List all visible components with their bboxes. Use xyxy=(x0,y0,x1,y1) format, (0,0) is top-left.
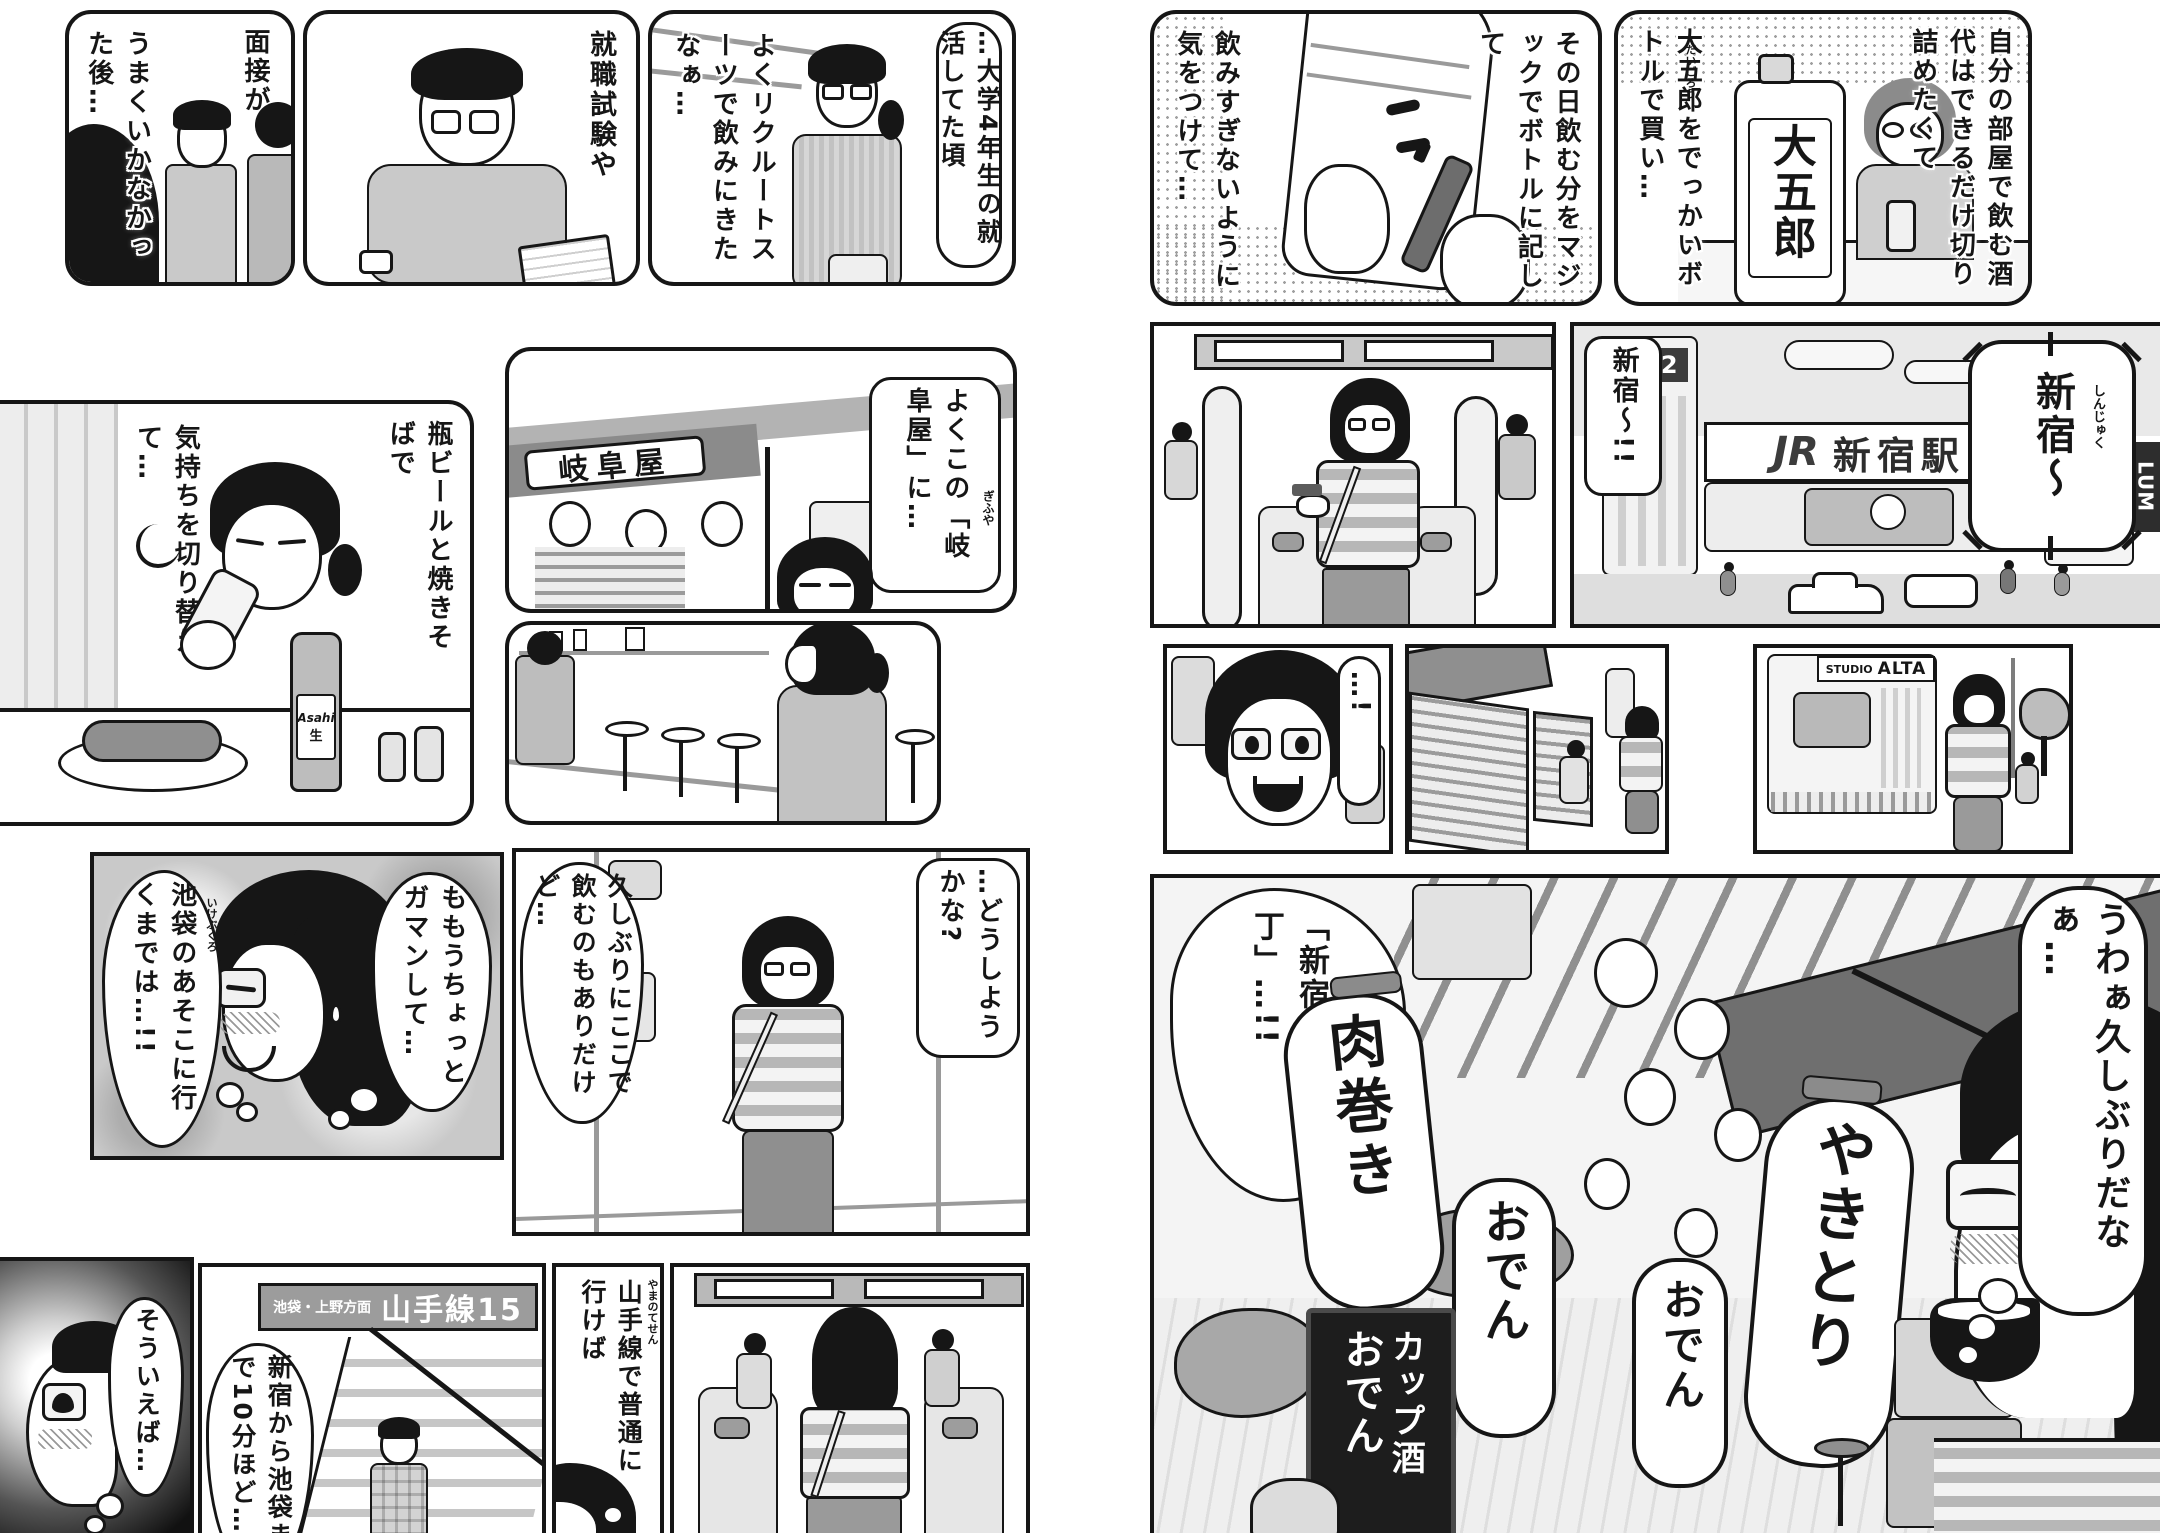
alta-sign-studio: STUDIO xyxy=(1826,663,1873,676)
woman-eye-line2 xyxy=(829,583,851,587)
recruit-glasses-l xyxy=(822,84,844,100)
alta-railing xyxy=(1771,792,1931,812)
thought-bubble-uwaa: うわぁ久しぶりだなぁ… xyxy=(2018,886,2148,1316)
young-woman-ponytail xyxy=(865,653,889,693)
storefront-screen xyxy=(535,547,685,613)
sj-woman-shirt xyxy=(1316,460,1420,568)
uwaa-dot-2 xyxy=(1966,1314,1998,1342)
beer-label: Asahi 生 xyxy=(296,694,336,760)
round-lantern-1 xyxy=(1594,938,1658,1008)
uwaa-dot-1 xyxy=(1978,1278,2018,1314)
dots-text: …! xyxy=(1340,671,1378,791)
thought-bubble-souieba: そういえば… xyxy=(108,1297,184,1497)
alley-glasses-l xyxy=(764,962,784,976)
yamanote-sign-big: 山手線15 xyxy=(381,1285,523,1329)
speech-bubble-hisashiburi-koko: 久しぶりにここで飲むのもありだけど… xyxy=(520,862,644,1124)
burst-shinjuku-text: 新宿〜 xyxy=(2023,371,2081,521)
caption-shushoku: 就職試験や xyxy=(581,30,620,210)
souieba-text: そういえば… xyxy=(128,1307,164,1487)
ikebukuro-text: 池袋のあそこに行くまでは…!! xyxy=(124,881,199,1137)
burst-bubble-shinjuku: 新宿〜 しんじゅく xyxy=(1968,340,2136,552)
applicant-hair xyxy=(173,100,231,130)
souieba-eye xyxy=(52,1393,74,1413)
woman-head-face xyxy=(791,565,857,613)
thought-dot-2 xyxy=(328,1108,352,1130)
eraser xyxy=(359,250,393,274)
stool-seat-3 xyxy=(717,733,761,749)
gates-light-1 xyxy=(1214,340,1344,362)
lantern-round-3 xyxy=(701,501,743,547)
gate-reader-l xyxy=(714,1417,750,1439)
caption-mensetsu: 面接が xyxy=(235,28,273,158)
leaving-man xyxy=(515,655,575,765)
sj-glasses-l xyxy=(1348,418,1366,431)
cloud-1 xyxy=(1784,340,1894,370)
thought-bubble-ikebukuro: 池袋のあそこに行くまでは…!! いけぶくろ xyxy=(102,870,222,1148)
woman-eye-line xyxy=(799,583,821,587)
gate-reader-r xyxy=(942,1417,978,1439)
overhead-sign-2 xyxy=(864,1279,984,1299)
hoodie-glasses-l xyxy=(1882,122,1904,138)
shutter-1 xyxy=(1409,692,1529,854)
round-lantern-6 xyxy=(1674,1208,1718,1258)
thought-dot-4 xyxy=(236,1102,258,1122)
oden-board-line1: おでん xyxy=(1337,1329,1385,1529)
daigoro-label-text: 大五郎 xyxy=(1758,123,1822,273)
sj-gate-reader-l xyxy=(1272,532,1304,552)
souieba-blush xyxy=(38,1429,92,1449)
ped-2-body xyxy=(2000,568,2016,594)
bg-person-2-head xyxy=(932,1329,954,1351)
caption-jibun-heya: 自分の部屋で飲む酒代はできるだけ切り詰めたくて xyxy=(1903,28,2016,296)
ped-1-body xyxy=(1720,570,1736,596)
recruit-glasses-r xyxy=(850,84,872,100)
daigoro-cap xyxy=(1758,54,1794,84)
storefront-post xyxy=(765,447,770,613)
yamanote-text: 山手線で普通に行けば xyxy=(574,1279,647,1475)
lantern-oden2-text: おでん xyxy=(1650,1278,1711,1468)
recruit-bag xyxy=(828,254,888,286)
alta-ped-body xyxy=(2015,764,2039,804)
recruit-hair xyxy=(808,44,886,84)
alta-sign: STUDIO ALTA xyxy=(1817,656,1935,682)
gate-machine-l xyxy=(698,1387,778,1533)
street-pole xyxy=(2011,658,2015,778)
alley-woman-pants xyxy=(742,1130,834,1234)
tv-signboard xyxy=(1412,884,1532,980)
sj-glasses-r xyxy=(1372,418,1390,431)
burst-tick-5 xyxy=(2048,332,2053,356)
street-stool xyxy=(1814,1438,1870,1458)
young-woman-profile xyxy=(785,643,819,685)
caption-nomisugi: 飲みすぎないように気をつけて… xyxy=(1168,30,1243,292)
beer-brand: Asahi xyxy=(297,711,334,725)
yamanote-furigana: やまのてせん xyxy=(644,1279,660,1345)
sj-bg-person-1-head xyxy=(1172,422,1192,442)
uwaa-text: うわぁ久しぶりだなぁ… xyxy=(2031,901,2135,1301)
panel-interview: 面接が うまくいかなかった後… xyxy=(65,10,295,286)
barrel xyxy=(1250,1478,1340,1533)
ic-card xyxy=(1292,484,1322,496)
bg-person-2 xyxy=(924,1349,960,1407)
smile-teeth xyxy=(1257,776,1299,784)
ped-3-body xyxy=(2054,572,2070,596)
caption-box-daigaku: …大学4年生の就活してた頃 xyxy=(936,22,1002,268)
young-woman-back xyxy=(777,685,887,825)
gates-light-2 xyxy=(1364,340,1494,362)
round-lantern-3 xyxy=(1624,1068,1676,1126)
bg-person-1-head xyxy=(744,1333,766,1355)
manga-spread: 面接が うまくいかなかった後… 就職試験や …大学4年生の就活してた頃 よくリク… xyxy=(0,0,2160,1533)
holding-hand xyxy=(1304,164,1390,274)
panel-recruit-suit: …大学4年生の就活してた頃 よくリクルートスーツで飲みにきたなぁ… xyxy=(648,10,1016,286)
panel-jr-shinjuku: NE2 JR 新宿駅 LUM 新宿〜!! 新宿〜 しんじゅく xyxy=(1570,322,2160,628)
caption-binbeer: 瓶ビールと焼きそばで xyxy=(381,420,456,660)
caption-daigaku-text: …大学4年生の就活してた頃 xyxy=(933,30,1006,260)
gifuya-bubble-text: よくこの「岐阜屋」に… xyxy=(897,387,972,583)
stairs-man-shirt xyxy=(370,1463,428,1533)
stool-seat-4 xyxy=(895,729,935,745)
gifuya-furigana: ぎふや xyxy=(979,490,996,526)
panel-gaman: ももうちょっとガマンして… 池袋のあそこに行くまでは…!! いけぶくろ xyxy=(90,852,504,1160)
pillar-round xyxy=(1202,386,1242,628)
sweat-drop xyxy=(330,1004,342,1024)
panel-marking-bottle: その日飲む分をマジックでボトルに記して 飲みすぎないように気をつけて… xyxy=(1150,10,1602,306)
taxi xyxy=(1788,584,1884,614)
thought-dot-1 xyxy=(348,1086,380,1114)
caption-recruit-suit: よくリクルートスーツで飲みにきたなぁ… xyxy=(666,32,779,284)
daigoro-furigana: だいごろう xyxy=(1682,44,1698,99)
panel-staircase: 池袋・上野方面 山手線15 新宿から池袋まで10分ほど… xyxy=(198,1263,546,1533)
sj-bg-person-1 xyxy=(1164,440,1198,500)
shinjuku-bubble-text: 新宿〜!! xyxy=(1603,346,1642,486)
sj-woman-hand xyxy=(1296,494,1330,518)
drinker-hand xyxy=(180,620,236,670)
shutter-man-body xyxy=(1559,756,1589,804)
panel-alley: …どうしようかな? 久しぶりにここで飲むのもありだけど… xyxy=(512,848,1030,1236)
yakisoba-noodles xyxy=(82,720,222,762)
speech-bubble-gifuya: よくこの「岐阜屋」に… ぎふや xyxy=(869,377,1001,593)
souieba-dot-1 xyxy=(96,1493,124,1519)
speech-bubble-yamanote: 山手線で普通に行けば やまのてせん xyxy=(560,1271,660,1483)
van xyxy=(1904,574,1978,608)
caption-umaku: うまくいかなかった後… xyxy=(79,30,154,280)
exam-woman-hair xyxy=(411,48,523,100)
souieba-dot-2 xyxy=(84,1515,106,1533)
panel-smile-face: …! xyxy=(1163,644,1393,854)
panel-omoide-yokocho: 「新宿思い出横丁」…!! 肉巻き おでん やきとり おでん おでん カップ酒 xyxy=(1150,874,2160,1533)
panel-drinking: 瓶ビールと焼きそばで 気持ちを切り替えて… Asahi 生 xyxy=(0,400,474,826)
billboard-figure-head xyxy=(1870,494,1906,530)
speech-bubble-dots: …! xyxy=(1337,656,1381,806)
alta-vision-screen xyxy=(1793,692,1871,748)
lantern-oden-1: おでん xyxy=(1452,1178,1556,1438)
gates-woman-hair-back xyxy=(812,1307,898,1417)
uwaa-dot-3 xyxy=(1956,1344,1980,1366)
beer-sub: 生 xyxy=(309,725,322,744)
panel-face-yamanote: 山手線で普通に行けば やまのてせん xyxy=(552,1263,664,1533)
shutter-woman-pants xyxy=(1625,790,1659,834)
panel-daigoro: 大五郎 自分の部屋で飲む酒代はできるだけ切り詰めたくて 大五郎をでっかいボトルで… xyxy=(1614,10,2032,306)
stool-seat-1 xyxy=(605,721,649,737)
street-stool-leg xyxy=(1838,1456,1843,1526)
salt-shaker xyxy=(378,732,406,782)
lantern-oden1-text: おでん xyxy=(1471,1198,1538,1418)
stool-leg-4 xyxy=(911,743,915,803)
yamanote-sign-small: 池袋・上野方面 xyxy=(273,1297,371,1317)
round-lantern-2 xyxy=(1674,998,1730,1060)
faceup-dot xyxy=(602,1505,624,1525)
hisashiburi-koko-text: 久しぶりにここで飲むのもありだけど… xyxy=(528,873,637,1113)
panel-souieba: そういえば… xyxy=(0,1257,194,1533)
shinjuku-station-text: 新宿駅 xyxy=(1833,425,1965,480)
alta-woman-shirt xyxy=(1945,724,2011,798)
glasses-left-lens xyxy=(431,110,461,134)
stool-leg-3 xyxy=(735,747,739,803)
shinjuku-ikebukuro-text: 新宿から池袋まで10分ほど… xyxy=(224,1354,297,1533)
lantern-yakitori-text: やきとり xyxy=(1771,1115,1886,1451)
sj-bg-person-2-head xyxy=(1506,414,1528,436)
round-lantern-5 xyxy=(1584,1158,1630,1210)
stool-leg-2 xyxy=(679,741,683,797)
yamanote-sign: 池袋・上野方面 山手線15 xyxy=(258,1283,538,1331)
sj-woman-pants xyxy=(1322,568,1410,628)
drinker-ponytail xyxy=(328,544,362,596)
lantern-oden-2: おでん xyxy=(1632,1258,1728,1488)
closeup-closed-eye xyxy=(1960,1188,2016,1204)
doushiyou-text: …どうしようかな? xyxy=(930,868,1005,1048)
daigoro-label: 大五郎 xyxy=(1748,118,1832,278)
shelf-bottle-2 xyxy=(573,629,587,651)
bg-person-1 xyxy=(736,1353,772,1409)
applicant-body xyxy=(165,164,237,286)
burst-tick-6 xyxy=(2048,536,2053,560)
gate-machine-r xyxy=(924,1387,1004,1533)
gaman-blush xyxy=(220,1012,280,1034)
gaman-right-text: ももうちょっとガマンして… xyxy=(394,884,469,1100)
tree-trunk xyxy=(2041,736,2047,776)
shutter-woman-hair xyxy=(1625,706,1659,740)
motion-arc xyxy=(136,524,180,568)
sj-gate-reader-r xyxy=(1420,532,1452,552)
gates-woman-pants xyxy=(806,1497,902,1533)
glasses-right-lens xyxy=(469,110,499,134)
taxi-cabin xyxy=(1812,572,1858,588)
panel-gates-left xyxy=(670,1263,1030,1533)
panel-alta: STUDIO ALTA xyxy=(1753,644,2073,854)
stool-leg-1 xyxy=(623,735,627,791)
smile-eye-r xyxy=(1295,736,1309,754)
jr-logo-text: JR xyxy=(1773,429,1819,475)
alta-woman-face xyxy=(1961,692,1997,726)
alta-woman-pants xyxy=(1953,796,2003,852)
overhead-sign-1 xyxy=(714,1279,834,1299)
desk-edge xyxy=(407,282,640,286)
chopstick-holder xyxy=(625,627,645,651)
stool-seat-2 xyxy=(661,727,705,743)
closeup-shoulder xyxy=(1934,1438,2160,1533)
shutter-woman-shirt xyxy=(1619,736,1663,792)
smile-eye-l xyxy=(1245,736,1259,754)
thought-bubble-shinjuku-ikebukuro: 新宿から池袋まで10分ほど… xyxy=(206,1343,314,1533)
panel-gifuya-interior xyxy=(505,621,941,825)
ikebukuro-furigana: いけぶくろ xyxy=(203,897,219,952)
panel-gifuya-exterior: 岐阜屋 よくこの「岐阜屋」に… ぎふや xyxy=(505,347,1017,613)
panel-shutter-alley xyxy=(1405,644,1669,854)
sj-bg-person-2 xyxy=(1498,434,1536,500)
burst-shinjuku-furigana: しんじゅく xyxy=(2087,384,2106,449)
panel-shinjuku-gates xyxy=(1150,322,1556,628)
alley-glasses-r xyxy=(790,962,810,976)
tree xyxy=(2019,688,2071,740)
alta-lattice xyxy=(1881,688,1921,788)
recruit-ponytail xyxy=(878,100,904,140)
panel-exam: 就職試験や xyxy=(303,10,640,286)
lantern-round-1 xyxy=(549,501,591,547)
round-lantern-4 xyxy=(1714,1108,1762,1162)
pepper-shaker xyxy=(414,726,444,782)
speech-bubble-doushiyou: …どうしようかな? xyxy=(916,858,1020,1058)
stairs-man-hair xyxy=(378,1417,420,1439)
speech-bubble-shinjuku: 新宿〜!! xyxy=(1584,336,1662,496)
second-applicant-body xyxy=(247,154,295,286)
caption-majikku: その日飲む分をマジックでボトルに記して xyxy=(1471,30,1584,292)
lantern-nikumaki-text: 肉巻き xyxy=(1308,1008,1421,1295)
alta-sign-alta: ALTA xyxy=(1878,659,1927,679)
leaving-man-head xyxy=(527,631,563,665)
oden-board-line2: カップ酒 xyxy=(1385,1329,1426,1529)
